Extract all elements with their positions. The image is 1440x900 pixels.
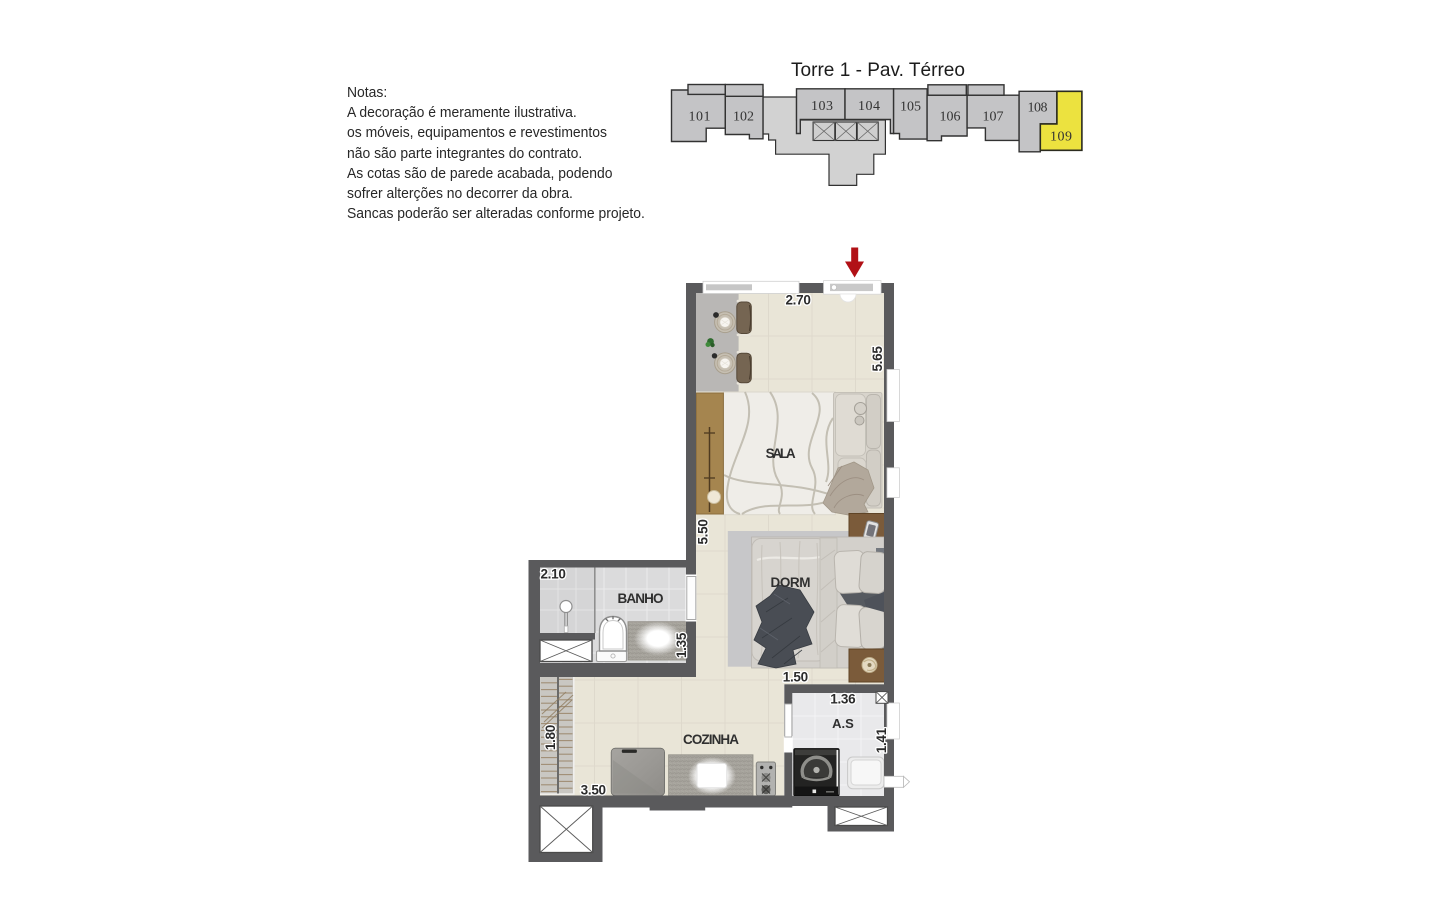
svg-text:109: 109: [1050, 130, 1072, 145]
svg-text:Torre 1 - Pav. Térreo: Torre 1 - Pav. Térreo: [791, 59, 965, 81]
svg-text:2.10: 2.10: [540, 567, 565, 582]
svg-text:2.70: 2.70: [785, 293, 810, 308]
svg-text:105: 105: [900, 100, 921, 115]
svg-text:5.65: 5.65: [870, 346, 885, 372]
svg-text:106: 106: [940, 110, 961, 125]
svg-text:3.50: 3.50: [581, 783, 606, 798]
svg-text:1.36: 1.36: [830, 692, 856, 707]
svg-text:101: 101: [689, 110, 711, 125]
svg-text:DORM: DORM: [771, 575, 811, 590]
svg-text:102: 102: [733, 110, 754, 125]
svg-text:103: 103: [811, 99, 833, 114]
svg-text:1.50: 1.50: [783, 669, 808, 684]
svg-text:BANHO: BANHO: [618, 591, 664, 606]
svg-text:1.80: 1.80: [543, 725, 558, 750]
svg-text:108: 108: [1028, 101, 1048, 116]
svg-text:5.50: 5.50: [696, 519, 711, 544]
svg-text:1.35: 1.35: [674, 632, 689, 658]
svg-text:107: 107: [983, 110, 1004, 125]
svg-text:1.41: 1.41: [874, 727, 889, 753]
svg-text:104: 104: [858, 99, 880, 114]
svg-text:A.S: A.S: [832, 716, 854, 731]
svg-text:COZINHA: COZINHA: [683, 732, 739, 747]
svg-text:SALA: SALA: [766, 446, 796, 461]
